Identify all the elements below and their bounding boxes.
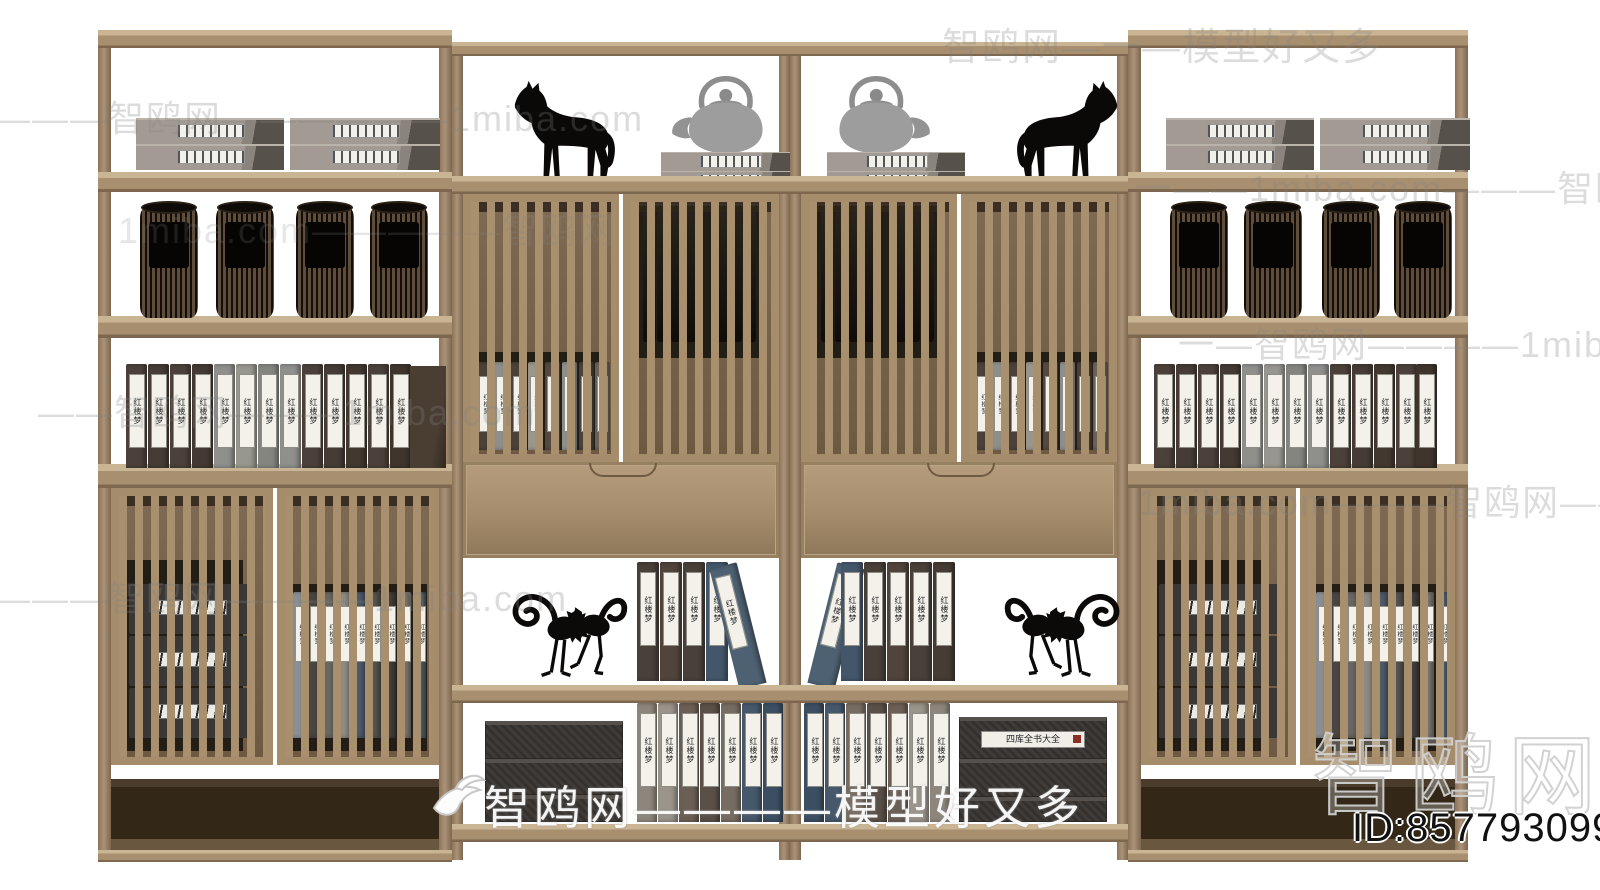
door-slats — [285, 496, 431, 757]
book-spine: 红楼梦 — [192, 364, 213, 468]
storage-box — [1166, 118, 1314, 144]
door-interior — [119, 496, 265, 757]
book-spine: 红楼梦 — [1416, 364, 1437, 468]
door-slats — [1149, 496, 1288, 757]
book-spine-label: 红楼梦 — [891, 713, 907, 787]
storage-box-stack — [136, 118, 284, 172]
door-interior: 红楼梦红楼梦红楼梦红楼梦红楼梦红楼梦红楼梦红楼梦红楼梦 — [285, 496, 431, 757]
bottom-shelf: 红楼梦红楼梦红楼梦红楼梦红楼梦红楼梦红楼梦 — [463, 703, 779, 824]
tea-canister — [1244, 206, 1302, 318]
book-spine: 红楼梦 — [1396, 364, 1417, 468]
book-spine-label: 红楼梦 — [640, 713, 656, 787]
tea-canister — [1322, 206, 1380, 318]
shelf-beam — [452, 42, 790, 56]
crane-statues — [996, 564, 1131, 684]
storage-box — [136, 118, 284, 144]
book-spine: 红楼梦 — [683, 562, 705, 681]
storage-box-stack — [290, 118, 440, 172]
book-row: 红楼梦红楼梦红楼梦红楼梦红楼梦红楼梦红楼梦红楼梦红楼梦红楼梦红楼梦红楼梦红楼梦 — [1128, 360, 1468, 472]
product-image-stage: 红楼梦红楼梦红楼梦红楼梦红楼梦红楼梦红楼梦红楼梦红楼梦红楼梦红楼梦红楼梦红楼梦 … — [0, 0, 1600, 890]
door-interior: 红楼梦红楼梦红楼梦红楼梦红楼梦红楼梦红楼梦红楼梦 — [969, 202, 1109, 454]
book-spine: 红楼梦 — [1286, 364, 1307, 468]
storage-box-stack — [1166, 118, 1314, 172]
shelf-beam — [1128, 30, 1468, 48]
teapot — [815, 64, 943, 156]
book-spine-label: 红楼梦 — [640, 572, 656, 646]
book-spine-label: 红楼梦 — [870, 713, 886, 787]
door-interior — [1149, 496, 1288, 757]
lattice-cabinet: 红楼梦红楼梦红楼梦红楼梦红楼梦红楼梦红楼梦红楼梦红楼梦 — [1141, 488, 1455, 765]
book-spine: 红楼梦 — [864, 562, 886, 681]
book-spine-label: 红楼梦 — [283, 374, 299, 448]
book-spine-label: 红楼梦 — [913, 572, 929, 646]
storage-box — [1320, 144, 1470, 170]
drawer — [463, 462, 779, 558]
horse-statue — [507, 78, 625, 190]
book-spine-label: 红楼梦 — [1311, 374, 1327, 448]
shelf-beam — [98, 30, 452, 48]
book-spine: 红楼梦 — [721, 703, 741, 822]
book-spine-label: 红楼梦 — [1333, 374, 1349, 448]
book-spine-label: 红楼梦 — [371, 374, 387, 448]
canister-row — [98, 206, 452, 318]
storage-box-stack — [1320, 118, 1470, 172]
book-spine-label: 红楼梦 — [261, 374, 277, 448]
book-spine: 红楼梦 — [390, 364, 411, 468]
book-spine-label: 红楼梦 — [686, 572, 702, 646]
book-spine-label: 红楼梦 — [1399, 374, 1415, 448]
teapot — [659, 64, 787, 156]
lattice-door — [111, 488, 273, 765]
book-spine-label: 红楼梦 — [217, 374, 233, 448]
door-slats — [969, 202, 1109, 454]
book-spine-label: 红楼梦 — [1245, 374, 1261, 448]
book-spine: 红楼梦 — [841, 562, 863, 681]
book-spine: 红楼梦 — [1352, 364, 1373, 468]
shelf-beam — [790, 824, 1128, 842]
book-spine-label: 红楼梦 — [1289, 374, 1305, 448]
book-spine-label: 红楼梦 — [1419, 374, 1435, 448]
book-spine: 红楼梦 — [679, 703, 699, 822]
book-row: 红楼梦红楼梦红楼梦红楼梦红楼梦红楼梦红楼梦 — [463, 703, 779, 824]
book-spine: 红楼梦 — [930, 703, 950, 822]
storage-box — [1320, 118, 1470, 144]
book-spine: 红楼梦 — [637, 562, 659, 681]
box-set-label: 四库全书大全 — [981, 731, 1085, 748]
shelf-beam — [452, 176, 790, 194]
book-spine: 红楼梦 — [700, 703, 720, 822]
book-spine: 红楼梦 — [302, 364, 323, 468]
book-spine: 红楼梦 — [637, 703, 657, 822]
book-spine-label: 红楼梦 — [933, 713, 949, 787]
lattice-cabinet: 红楼梦红楼梦红楼梦红楼梦红楼梦红楼梦红楼梦红楼梦红楼梦 — [111, 488, 439, 765]
book-spine-label: 红楼梦 — [1355, 374, 1371, 448]
storage-box — [661, 152, 799, 171]
box-set — [959, 797, 1107, 822]
bottom-rail — [1128, 850, 1468, 862]
bookend-slab — [410, 366, 446, 468]
book-spine: 红楼梦 — [1198, 364, 1219, 468]
bottom-rail — [98, 850, 452, 862]
lattice-door: 红楼梦红楼梦红楼梦红楼梦红楼梦红楼梦红楼梦红楼梦 — [463, 194, 619, 462]
bookshelf-unit-left: 红楼梦红楼梦红楼梦红楼梦红楼梦红楼梦红楼梦红楼梦红楼梦红楼梦红楼梦红楼梦红楼梦 … — [98, 30, 452, 862]
bookshelf-unit-center-right: 红楼梦红楼梦红楼梦红楼梦红楼梦红楼梦红楼梦红楼梦 红楼梦红楼梦红楼梦红楼梦红楼梦… — [790, 42, 1128, 860]
book-spine: 红楼梦 — [887, 562, 909, 681]
lattice-cabinet: 红楼梦红楼梦红楼梦红楼梦红楼梦红楼梦红楼梦红楼梦 — [801, 194, 1117, 462]
lattice-door — [623, 194, 779, 462]
book-spine-label: 红楼梦 — [327, 374, 343, 448]
book-spine-label: 红楼梦 — [195, 374, 211, 448]
bookshelf-unit-right: 红楼梦红楼梦红楼梦红楼梦红楼梦红楼梦红楼梦红楼梦红楼梦红楼梦红楼梦红楼梦红楼梦 … — [1128, 30, 1468, 862]
book-spine-label: 红楼梦 — [867, 572, 883, 646]
book-spine: 红楼梦 — [742, 703, 762, 822]
lattice-door — [1141, 488, 1296, 765]
lattice-door: 红楼梦红楼梦红楼梦红楼梦红楼梦红楼梦红楼梦红楼梦红楼梦 — [1300, 488, 1455, 765]
book-spine-label: 红楼梦 — [936, 572, 952, 646]
book-spine: 红楼梦 — [236, 364, 257, 468]
book-spine-label: 红楼梦 — [349, 374, 365, 448]
drawer — [801, 462, 1117, 558]
book-spine-label: 红楼梦 — [1157, 374, 1173, 448]
storage-box — [136, 144, 284, 170]
door-interior — [809, 202, 949, 454]
book-spine: 红楼梦 — [1374, 364, 1395, 468]
lattice-cabinet: 红楼梦红楼梦红楼梦红楼梦红楼梦红楼梦红楼梦红楼梦 — [463, 194, 779, 462]
book-spine-label: 红楼梦 — [151, 374, 167, 448]
tea-canister — [1170, 206, 1228, 318]
book-spine-label: 红楼梦 — [745, 713, 761, 787]
bookshelf-unit-center-left: 红楼梦红楼梦红楼梦红楼梦红楼梦红楼梦红楼梦红楼梦 — [452, 42, 790, 860]
book-spine-label: 红楼梦 — [239, 374, 255, 448]
shelf-beam — [1128, 172, 1468, 192]
book-spine-label: 红楼梦 — [890, 572, 906, 646]
horse-statue — [1007, 78, 1125, 190]
book-spine: 红楼梦 — [909, 703, 929, 822]
bottom-shelf: 红楼梦红楼梦红楼梦红楼梦红楼梦红楼梦红楼梦 四库全书大全 — [801, 703, 1117, 824]
book-spine-label: 红楼梦 — [661, 713, 677, 787]
book-spine: 红楼梦 — [1308, 364, 1329, 468]
tea-canister — [216, 206, 274, 318]
book-spine-label: 红楼梦 — [663, 572, 679, 646]
canister-row — [1128, 206, 1468, 318]
book-spine: 红楼梦 — [867, 703, 887, 822]
book-spine: 红楼梦 — [126, 364, 147, 468]
frame-post — [452, 42, 463, 860]
book-spine-label: 红楼梦 — [912, 713, 928, 787]
door-slats — [471, 202, 611, 454]
open-base — [111, 765, 439, 850]
middle-shelf: 红楼梦红楼梦红楼梦红楼梦红楼梦 — [463, 558, 779, 685]
book-row: 红楼梦红楼梦红楼梦红楼梦红楼梦红楼梦红楼梦红楼梦红楼梦红楼梦红楼梦红楼梦红楼梦 — [98, 360, 452, 472]
book-spine-label: 红楼梦 — [682, 713, 698, 787]
door-slats — [809, 202, 949, 454]
book-spine: 红楼梦 — [368, 364, 389, 468]
shelf-beam — [790, 176, 1128, 194]
door-slats — [119, 496, 265, 757]
tea-canister — [140, 206, 198, 318]
tea-canister — [1394, 206, 1452, 318]
door-interior — [631, 202, 771, 454]
door-interior: 红楼梦红楼梦红楼梦红楼梦红楼梦红楼梦红楼梦红楼梦红楼梦 — [1308, 496, 1447, 757]
book-spine: 红楼梦 — [825, 703, 845, 822]
book-spine-label: 红楼梦 — [1201, 374, 1217, 448]
book-spine: 红楼梦 — [846, 703, 866, 822]
book-spine: 红楼梦 — [1220, 364, 1241, 468]
shelf-beam — [98, 172, 452, 192]
book-spine-label: 红楼梦 — [828, 713, 844, 787]
book-spine: 红楼梦 — [1330, 364, 1351, 468]
display-shelf — [801, 56, 1117, 176]
book-spine-label: 红楼梦 — [173, 374, 189, 448]
book-spine-label: 红楼梦 — [1377, 374, 1393, 448]
book-spine: 红楼梦 — [763, 703, 783, 822]
book-spine: 红楼梦 — [258, 364, 279, 468]
tea-canister — [296, 206, 354, 318]
book-spine-label: 红楼梦 — [807, 713, 823, 787]
book-spine: 红楼梦 — [933, 562, 955, 681]
box-set — [959, 759, 1107, 797]
storage-box — [1166, 144, 1314, 170]
book-spine-label: 红楼梦 — [1267, 374, 1283, 448]
book-spine: 红楼梦 — [324, 364, 345, 468]
book-spine: 红楼梦 — [280, 364, 301, 468]
book-spine-label: 红楼梦 — [724, 713, 740, 787]
lattice-door: 红楼梦红楼梦红楼梦红楼梦红楼梦红楼梦红楼梦红楼梦红楼梦 — [277, 488, 439, 765]
display-shelf — [463, 56, 779, 176]
book-spine-label: 红楼梦 — [1179, 374, 1195, 448]
shelf-beam — [1128, 316, 1468, 338]
open-base — [1141, 765, 1455, 850]
book-spine-label: 红楼梦 — [849, 713, 865, 787]
book-spine: 红楼梦 — [888, 703, 908, 822]
book-spine: 红楼梦 — [346, 364, 367, 468]
book-spine: 红楼梦 — [1264, 364, 1285, 468]
book-spine-label: 红楼梦 — [129, 374, 145, 448]
shelf-beam — [452, 824, 790, 842]
door-interior: 红楼梦红楼梦红楼梦红楼梦红楼梦红楼梦红楼梦红楼梦 — [471, 202, 611, 454]
book-spine-label: 红楼梦 — [844, 572, 860, 646]
book-spine: 红楼梦 — [1154, 364, 1175, 468]
lattice-door: 红楼梦红楼梦红楼梦红楼梦红楼梦红楼梦红楼梦红楼梦 — [961, 194, 1117, 462]
book-spine-label: 红楼梦 — [766, 713, 782, 787]
book-spine: 红楼梦 — [660, 562, 682, 681]
book-spine: 红楼梦 — [1176, 364, 1197, 468]
book-spine: 红楼梦 — [148, 364, 169, 468]
book-spine-label: 红楼梦 — [305, 374, 321, 448]
book-spine-label: 红楼梦 — [703, 713, 719, 787]
door-slats — [631, 202, 771, 454]
book-spine: 红楼梦 — [658, 703, 678, 822]
storage-box — [290, 144, 440, 170]
book-spine: 红楼梦 — [910, 562, 932, 681]
book-spine-label: 红楼梦 — [393, 374, 409, 448]
frame-post — [790, 42, 801, 860]
shelf-beam — [790, 42, 1128, 56]
book-spine: 红楼梦 — [170, 364, 191, 468]
box-set-stack — [959, 703, 1109, 824]
lattice-door — [801, 194, 957, 462]
door-slats — [1308, 496, 1447, 757]
middle-shelf: 红楼梦红楼梦红楼梦红楼梦红楼梦红楼梦 — [801, 558, 1117, 685]
shelf-beam — [790, 685, 1128, 703]
storage-box — [290, 118, 440, 144]
book-spine: 红楼梦 — [214, 364, 235, 468]
shelf-beam — [452, 685, 790, 703]
shelf-beam — [98, 316, 452, 338]
storage-box — [827, 152, 965, 171]
tea-canister — [370, 206, 428, 318]
book-row: 红楼梦红楼梦红楼梦红楼梦红楼梦 — [463, 558, 779, 685]
book-spine: 红楼梦 — [1242, 364, 1263, 468]
book-spine: 红楼梦 — [804, 703, 824, 822]
book-spine-label: 红楼梦 — [1223, 374, 1239, 448]
